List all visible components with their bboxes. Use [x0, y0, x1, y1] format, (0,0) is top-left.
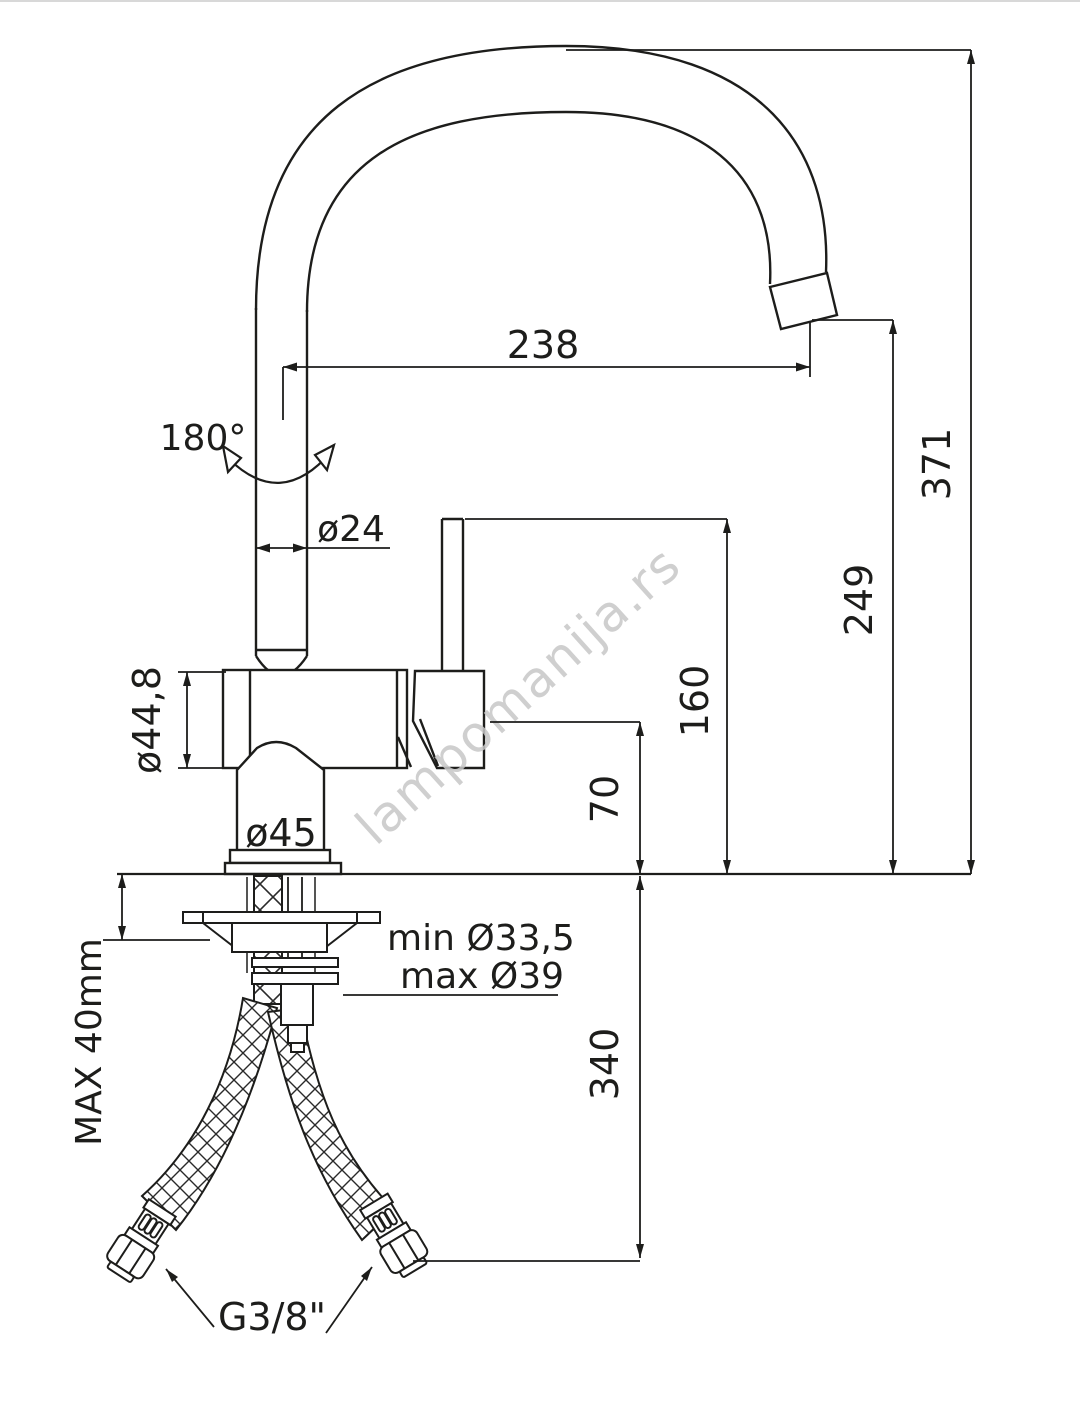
arrowhead-down-icon	[889, 860, 897, 874]
dim-counter-thickness-label: MAX 40mm	[69, 938, 110, 1146]
hole-min-label: min Ø33,5	[387, 918, 575, 959]
mounting-washer	[183, 912, 380, 984]
arrowhead-up-icon	[118, 874, 126, 888]
swivel-angle-label: 180°	[160, 418, 247, 459]
under-counter-assembly	[101, 876, 433, 1286]
hole-max-label: max Ø39	[400, 956, 564, 997]
dim-hose-drop-label: 340	[583, 1028, 627, 1101]
arrowhead-up-icon	[889, 320, 897, 334]
supply-hose-left	[142, 998, 277, 1230]
base-flange-lower	[225, 863, 341, 874]
dim-body-diameter-label: ø44,8	[125, 666, 169, 774]
arrowhead-up-icon	[183, 672, 191, 686]
dim-base-diameter-label: ø45	[245, 811, 317, 855]
dimension-body-diameter	[178, 672, 226, 768]
dimension-371	[566, 50, 975, 874]
handle-lever	[442, 519, 463, 670]
dim-handle-height-label: 160	[673, 665, 717, 738]
dim-spout-reach-label: 238	[507, 323, 580, 367]
arrowhead-up-icon	[636, 722, 644, 736]
diagram-sheet: lampomanija.rs 238 371 249 160 70 340	[0, 0, 1080, 1410]
arrowhead-down-icon	[967, 860, 975, 874]
arrowhead-right-icon	[293, 544, 307, 553]
arrowhead-down-icon	[636, 860, 644, 874]
faucet-dimension-drawing: lampomanija.rs 238 371 249 160 70 340	[0, 0, 1080, 1410]
arrowhead-down-icon	[636, 1244, 644, 1258]
arrowhead-down-icon	[118, 926, 126, 940]
dim-outlet-height-label: 249	[837, 564, 881, 637]
dimension-counter-thickness	[103, 874, 210, 940]
arrowhead-left-icon	[256, 544, 270, 553]
arrowhead-left-icon	[283, 363, 297, 372]
arrowhead-up-icon	[636, 876, 644, 890]
spout-arc	[256, 46, 837, 329]
dim-body-height-label: 70	[583, 775, 627, 823]
arrowhead-down-icon	[723, 860, 731, 874]
riser-pipe	[256, 308, 307, 676]
hose-thread-label: G3/8"	[218, 1295, 326, 1339]
page-top-border	[0, 0, 1080, 2]
arrowhead-down-icon	[183, 754, 191, 768]
dim-tube-diameter-label: ø24	[317, 509, 385, 550]
spout-inner-edge	[307, 112, 770, 312]
mounting-nut	[232, 923, 327, 952]
arrowhead-right-icon	[796, 363, 810, 372]
arrowhead-up-icon	[723, 519, 731, 533]
arrowhead-up-icon	[967, 50, 975, 64]
dim-overall-height-label: 371	[915, 428, 959, 501]
